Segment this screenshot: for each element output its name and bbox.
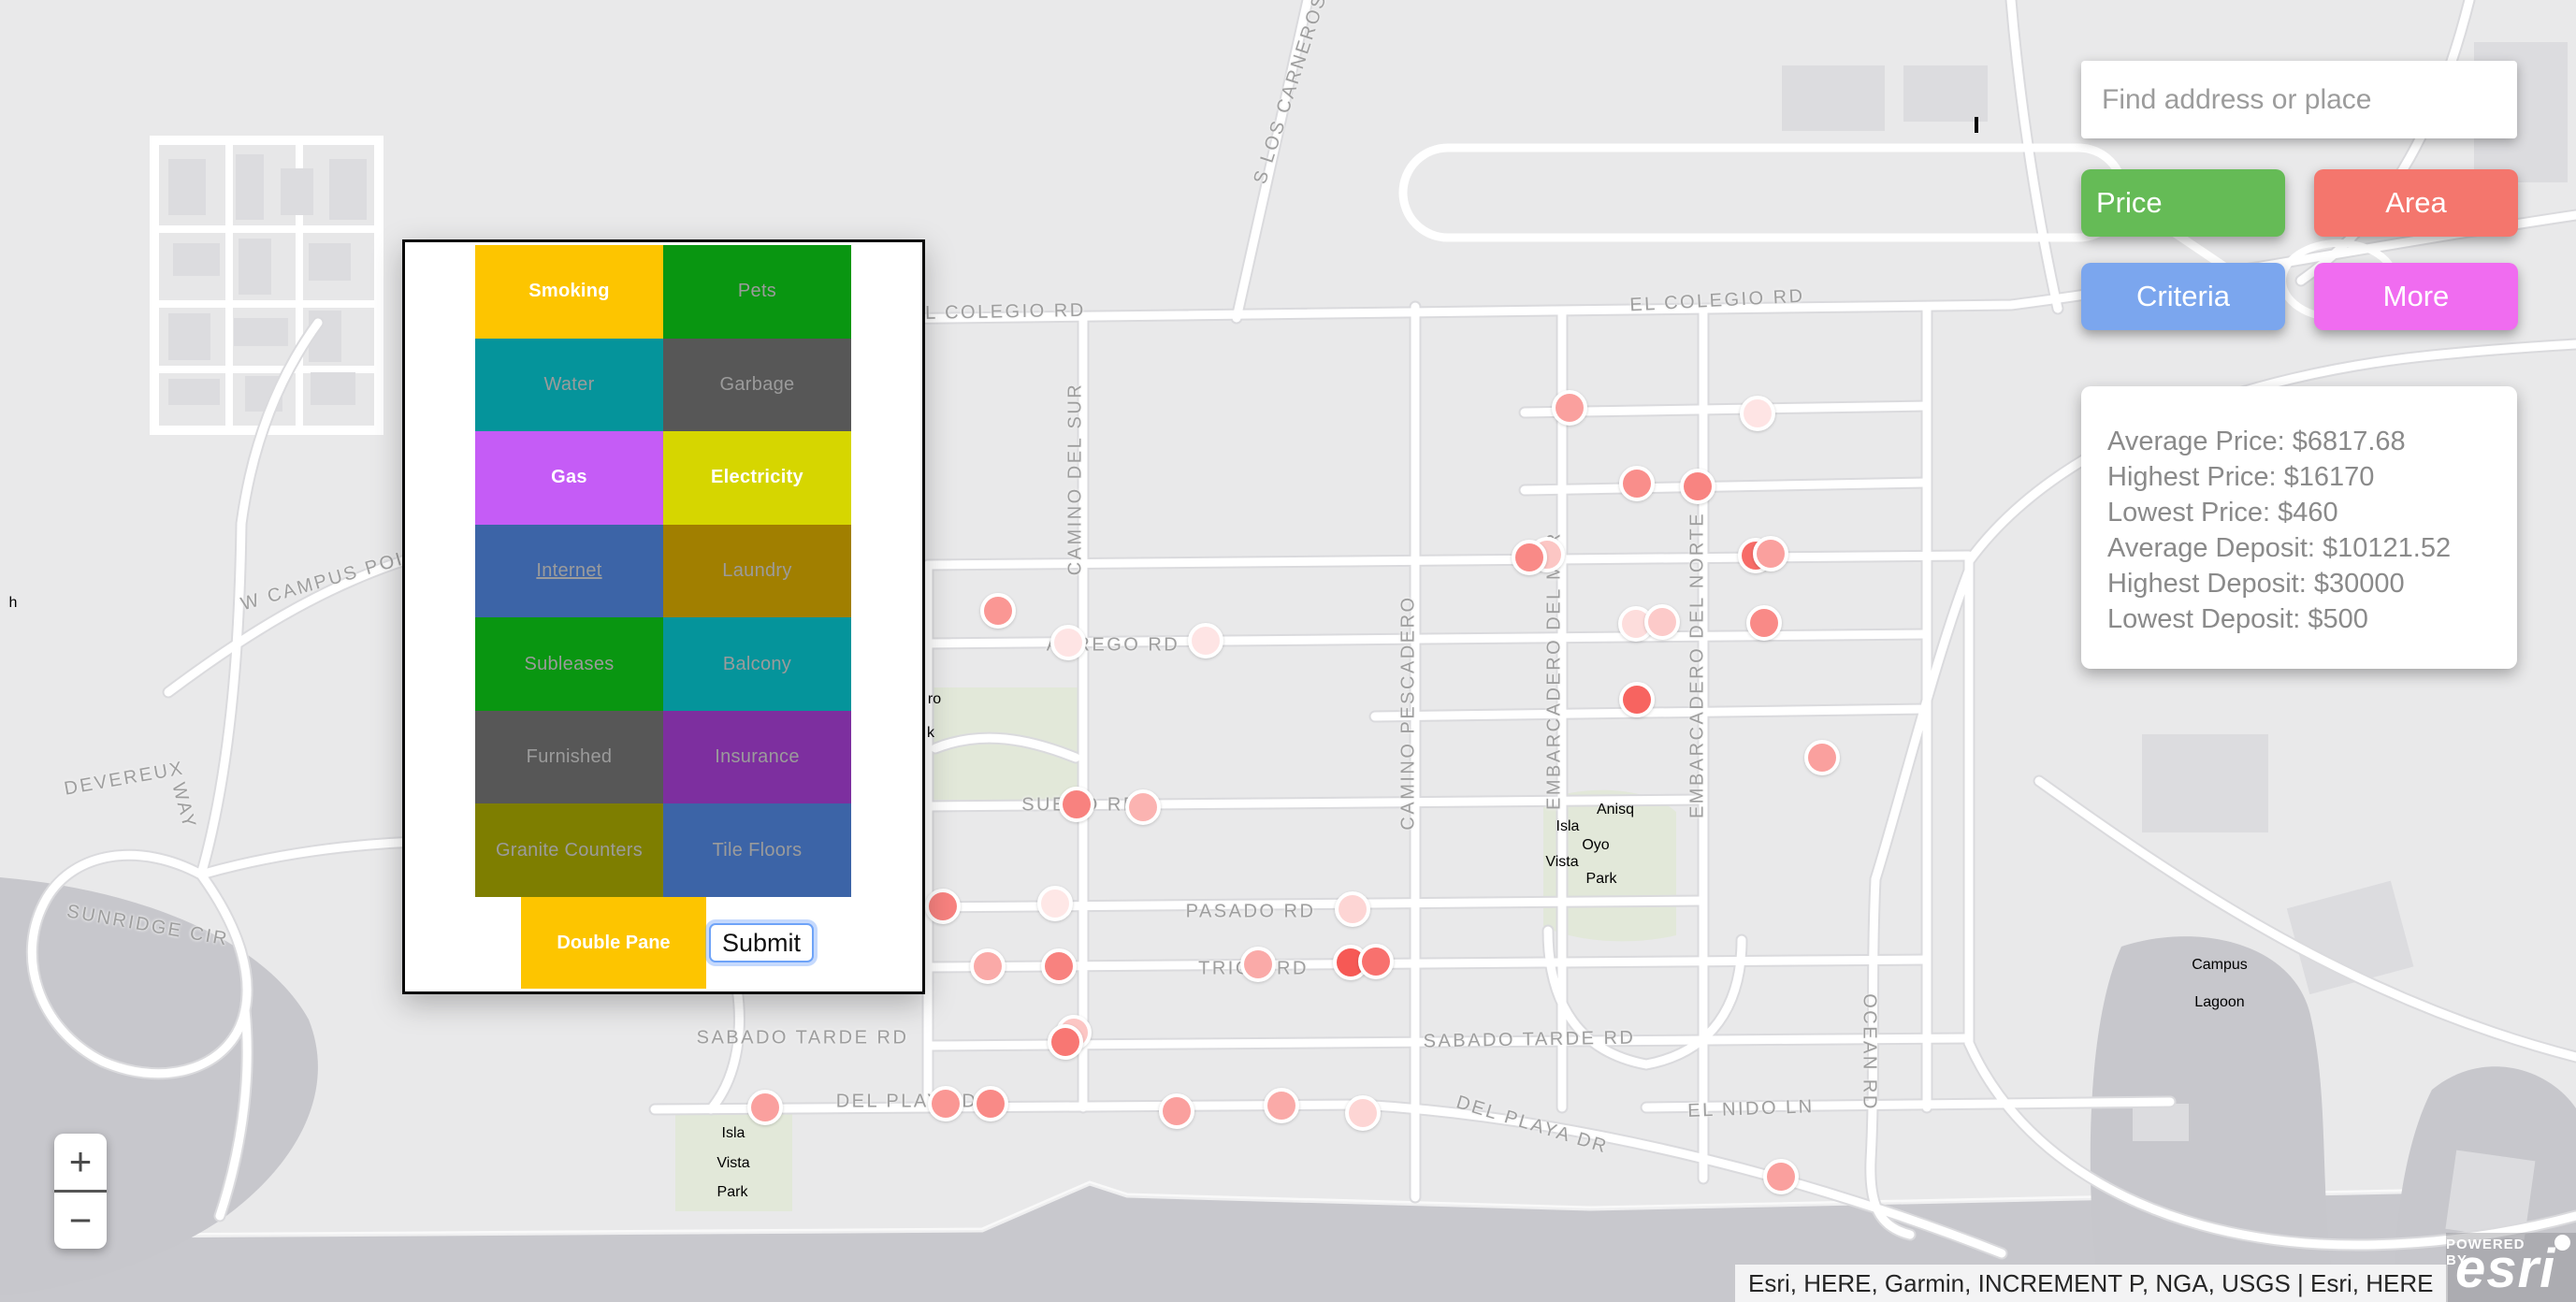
- listing-marker[interactable]: [1041, 948, 1077, 984]
- listing-marker[interactable]: [1763, 1159, 1799, 1194]
- street-label: EL COLEGIO RD: [910, 300, 1086, 325]
- listing-marker[interactable]: [1264, 1088, 1299, 1123]
- criteria-option-button[interactable]: Garbage: [663, 339, 851, 432]
- listing-marker[interactable]: [1619, 682, 1655, 717]
- stats-line: Highest Price: $16170: [2107, 459, 2517, 495]
- toolbar-button[interactable]: Area: [2314, 169, 2518, 237]
- stats-line: Lowest Deposit: $500: [2107, 601, 2517, 637]
- listing-marker[interactable]: [1552, 390, 1587, 426]
- listing-marker[interactable]: [1159, 1093, 1194, 1129]
- listing-marker[interactable]: [1804, 740, 1840, 775]
- toolbar-button[interactable]: Price: [2081, 169, 2285, 237]
- criteria-option-button[interactable]: Gas: [475, 431, 663, 525]
- listing-marker[interactable]: [925, 889, 961, 924]
- search-input[interactable]: [2081, 61, 2517, 138]
- esri-dot-icon: [2554, 1235, 2570, 1251]
- place-label: Oyo: [1582, 837, 1609, 854]
- listing-marker[interactable]: [1740, 396, 1775, 431]
- listing-marker[interactable]: [1358, 944, 1394, 979]
- place-label: Lagoon: [2194, 994, 2244, 1011]
- street-label: PASADO RD: [1186, 902, 1316, 923]
- criteria-option-button[interactable]: Insurance: [663, 711, 851, 804]
- toolbar: PriceAreaCriteriaMore: [2081, 169, 2518, 330]
- listing-marker[interactable]: [1746, 605, 1782, 641]
- listing-marker[interactable]: [1050, 625, 1086, 660]
- criteria-grid: SmokingPetsWaterGarbageGasElectricityInt…: [475, 245, 851, 897]
- toolbar-button[interactable]: Criteria: [2081, 263, 2285, 330]
- criteria-option-button[interactable]: Pets: [663, 245, 851, 339]
- listing-marker[interactable]: [928, 1086, 963, 1121]
- listing-marker[interactable]: [1048, 1024, 1083, 1060]
- esri-brand-text: esri: [2455, 1242, 2555, 1296]
- place-label: Park: [717, 1184, 748, 1201]
- toolbar-button[interactable]: More: [2314, 263, 2518, 330]
- zoom-out-button[interactable]: −: [54, 1193, 107, 1249]
- criteria-option-button[interactable]: Furnished: [475, 711, 663, 804]
- listing-marker[interactable]: [1644, 604, 1680, 640]
- criteria-option-button[interactable]: Subleases: [475, 617, 663, 711]
- text-cursor: [1975, 117, 1978, 133]
- street-label: CAMINO PESCADERO: [1398, 595, 1420, 830]
- listing-marker[interactable]: [1059, 787, 1094, 822]
- stats-line: Highest Deposit: $30000: [2107, 566, 2517, 601]
- place-label: Campus: [2192, 957, 2248, 974]
- place-label: Park: [1586, 871, 1617, 888]
- stats-line: Lowest Price: $460: [2107, 495, 2517, 530]
- listing-marker[interactable]: [1335, 891, 1370, 927]
- stats-line: Average Deposit: $10121.52: [2107, 530, 2517, 566]
- listing-marker[interactable]: [1512, 540, 1547, 575]
- criteria-option-button[interactable]: Balcony: [663, 617, 851, 711]
- criteria-option-button[interactable]: Smoking: [475, 245, 663, 339]
- listing-marker[interactable]: [973, 1086, 1008, 1121]
- zoom-in-button[interactable]: +: [54, 1134, 107, 1190]
- submit-button[interactable]: Submit: [709, 923, 814, 962]
- esri-logo: POWERED BY esri: [2446, 1233, 2576, 1302]
- listing-marker[interactable]: [980, 593, 1016, 629]
- listing-marker[interactable]: [1037, 886, 1073, 921]
- search-box: [2081, 61, 2517, 138]
- street-label: OCEAN RD: [1859, 993, 1880, 1111]
- stats-panel: Average Price: $6817.68Highest Price: $1…: [2081, 386, 2517, 669]
- listing-marker[interactable]: [970, 948, 1006, 984]
- listing-marker[interactable]: [747, 1090, 783, 1125]
- listing-marker[interactable]: [1188, 623, 1223, 658]
- street-label: EMBARCADERO DEL NORTE: [1687, 512, 1709, 818]
- listing-marker[interactable]: [1619, 466, 1655, 501]
- street-label: EL NIDO LN: [1687, 1096, 1815, 1122]
- street-label: DEL PLAYA DR: [836, 1092, 994, 1113]
- place-label: ro: [928, 691, 941, 708]
- place-label: h: [9, 595, 18, 612]
- place-label: Vista: [716, 1155, 749, 1172]
- housing-block: [154, 140, 379, 430]
- listing-marker[interactable]: [1680, 469, 1715, 504]
- street-label: CAMINO DEL SUR: [1065, 383, 1087, 576]
- place-label: Isla: [722, 1125, 745, 1142]
- place-label: k: [927, 725, 934, 742]
- criteria-option-button[interactable]: Internet: [475, 525, 663, 618]
- listing-marker[interactable]: [1125, 789, 1161, 825]
- criteria-modal: SmokingPetsWaterGarbageGasElectricityInt…: [402, 239, 925, 994]
- place-label: Anisq: [1597, 802, 1634, 818]
- criteria-option-button[interactable]: Granite Counters: [475, 803, 663, 897]
- zoom-control: + −: [54, 1134, 107, 1249]
- place-label: Vista: [1545, 854, 1578, 871]
- listing-marker[interactable]: [1753, 536, 1788, 571]
- listing-marker[interactable]: [1345, 1095, 1381, 1131]
- street-label: EMBARCADERO DEL MAR: [1544, 531, 1566, 810]
- listing-marker[interactable]: [1240, 947, 1276, 982]
- criteria-option-button[interactable]: Water: [475, 339, 663, 432]
- place-label: Isla: [1556, 818, 1580, 835]
- app-screen: EL COLEGIO RDEL COLEGIO RDS LOS CARNEROS…: [0, 0, 2576, 1302]
- attribution-text: Esri, HERE, Garmin, INCREMENT P, NGA, US…: [1748, 1269, 2433, 1298]
- street-label: SABADO TARDE RD: [1423, 1028, 1635, 1053]
- criteria-option-button[interactable]: Laundry: [663, 525, 851, 618]
- street-label: SABADO TARDE RD: [697, 1028, 909, 1049]
- criteria-option-double-pane[interactable]: Double Pane: [521, 897, 706, 989]
- criteria-option-button[interactable]: Tile Floors: [663, 803, 851, 897]
- map-attribution: Esri, HERE, Garmin, INCREMENT P, NGA, US…: [1735, 1265, 2448, 1302]
- stats-line: Average Price: $6817.68: [2107, 424, 2517, 459]
- criteria-option-button[interactable]: Electricity: [663, 431, 851, 525]
